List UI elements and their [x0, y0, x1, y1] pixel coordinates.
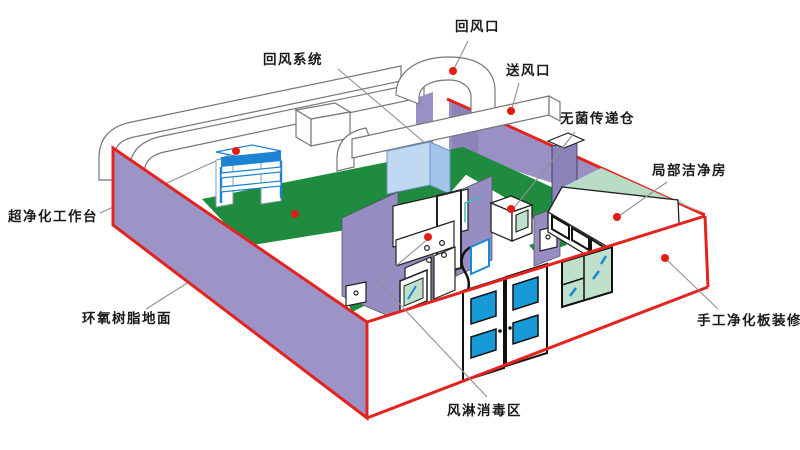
label-return-air-outlet: 回风口: [455, 19, 500, 35]
nozzle-hole: [427, 258, 432, 263]
anchor-transfer-chamber: [507, 205, 515, 213]
control-box-knob: [354, 291, 358, 295]
air-handling-box: [387, 142, 450, 194]
label-epoxy-resin-floor: 环氧树脂地面: [82, 310, 172, 327]
label-local-cleanroom: 局部洁净房: [652, 162, 727, 179]
nozzle-hole: [440, 241, 445, 246]
cleanroom-diagram: 回风系统 回风口 送风口 无菌传递仓 局部洁净房 超净化工作台 环氧树脂地面 手…: [0, 0, 800, 450]
anchor-epoxy-floor: [291, 210, 299, 218]
label-manual-panel-finish: 手工净化板装修: [697, 312, 800, 329]
supply-duct-end-face: [549, 96, 560, 121]
cleanroom-diagram-canvas: 回风系统 回风口 送风口 无菌传递仓 局部洁净房 超净化工作台 环氧树脂地面 手…: [0, 0, 800, 450]
door-leaf-left: [463, 278, 504, 381]
control-box-knob: [546, 235, 550, 239]
anchor-local-cleanroom: [613, 213, 621, 221]
anchor-supply-air-outlet: [507, 107, 515, 115]
sterile-transfer-chamber: [491, 196, 532, 241]
nozzle-hole: [425, 246, 430, 251]
anchor-return-air-outlet: [449, 67, 457, 75]
anchor-manual-panel-finish: [661, 254, 669, 262]
nozzle-hole: [442, 253, 447, 258]
air-handling-box-front: [387, 142, 430, 194]
door-handle-right: [508, 326, 512, 330]
anchor-workbench: [232, 147, 240, 155]
label-return-air-system: 回风系统: [263, 51, 323, 68]
label-ultra-clean-workbench: 超净化工作台: [7, 208, 98, 225]
label-sterile-transfer-chamber: 无菌传递仓: [559, 110, 635, 127]
label-supply-air-outlet: 送风口: [505, 62, 551, 79]
air-handling-box-side: [430, 142, 450, 194]
label-air-shower-area: 风淋消毒区: [447, 402, 522, 419]
door-handle-left: [498, 329, 502, 333]
anchor-air-shower: [424, 233, 432, 241]
